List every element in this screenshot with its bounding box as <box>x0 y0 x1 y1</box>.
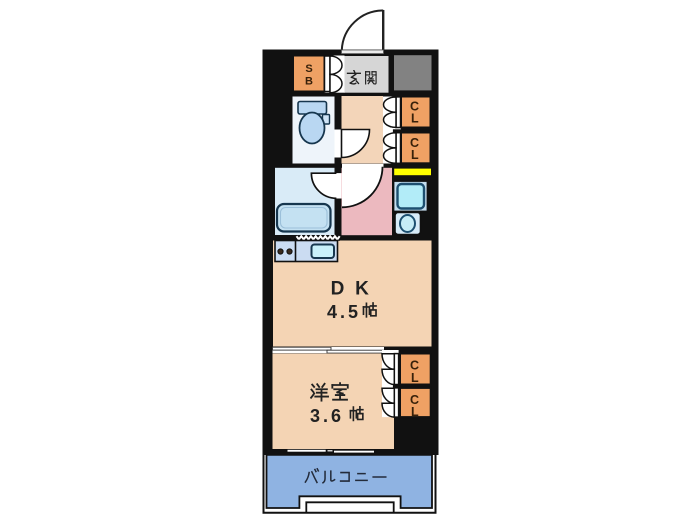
svg-text:L: L <box>411 405 419 419</box>
svg-text:B: B <box>305 76 313 88</box>
svg-text:L: L <box>411 112 419 126</box>
svg-text:3.6: 3.6 <box>310 406 344 426</box>
svg-text:S: S <box>305 63 312 75</box>
svg-text:D: D <box>331 279 345 300</box>
svg-text:K: K <box>355 279 369 300</box>
svg-text:4.5: 4.5 <box>327 302 361 322</box>
svg-text:L: L <box>411 371 419 385</box>
svg-text:L: L <box>411 148 419 162</box>
